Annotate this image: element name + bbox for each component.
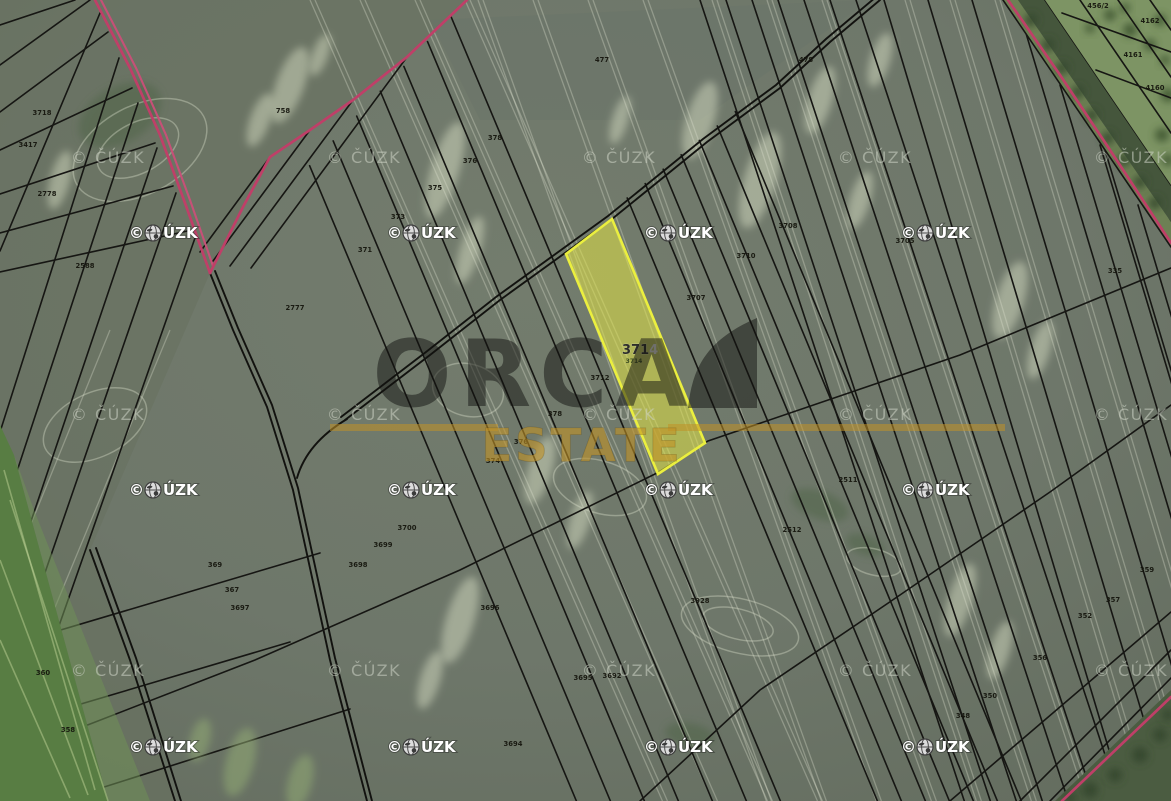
brand-orca-text: ORCA: [373, 320, 696, 428]
svg-text:375: 375: [428, 184, 442, 192]
svg-text:© ČÚZK: © ČÚZK: [327, 148, 401, 167]
svg-text:478: 478: [799, 56, 813, 64]
svg-text:©: ©: [129, 224, 144, 242]
svg-text:3707: 3707: [687, 294, 706, 302]
svg-text:© ČÚZK: © ČÚZK: [1094, 661, 1168, 680]
svg-text:©: ©: [901, 738, 916, 756]
brand-underline-left: [330, 424, 498, 431]
svg-text:378: 378: [488, 134, 502, 142]
svg-text:3718: 3718: [33, 109, 52, 117]
svg-text:© ČÚZK: © ČÚZK: [838, 405, 912, 424]
svg-text:356: 356: [1033, 654, 1047, 662]
svg-text:2512: 2512: [783, 526, 802, 534]
svg-text:758: 758: [276, 107, 290, 115]
svg-text:ÚZK: ÚZK: [421, 223, 457, 242]
svg-text:© ČÚZK: © ČÚZK: [1094, 405, 1168, 424]
svg-text:3698: 3698: [349, 561, 368, 569]
svg-text:© ČÚZK: © ČÚZK: [838, 148, 912, 167]
svg-text:367: 367: [225, 586, 239, 594]
svg-text:335: 335: [1108, 267, 1122, 275]
svg-text:© ČÚZK: © ČÚZK: [582, 148, 656, 167]
svg-text:3697: 3697: [231, 604, 250, 612]
svg-text:© ČÚZK: © ČÚZK: [1094, 148, 1168, 167]
svg-text:ÚZK: ÚZK: [678, 480, 714, 499]
svg-text:ÚZK: ÚZK: [421, 737, 457, 756]
svg-text:477: 477: [595, 56, 609, 64]
svg-text:4161: 4161: [1124, 51, 1143, 59]
svg-text:4162: 4162: [1141, 17, 1160, 25]
svg-text:352: 352: [1078, 612, 1092, 620]
svg-text:© ČÚZK: © ČÚZK: [71, 148, 145, 167]
svg-text:348: 348: [956, 712, 970, 720]
svg-text:©: ©: [901, 481, 916, 499]
brand-estate-text: ESTATE: [481, 419, 682, 472]
svg-text:3708: 3708: [779, 222, 798, 230]
svg-text:2778: 2778: [38, 190, 57, 198]
svg-text:3695: 3695: [574, 674, 593, 682]
svg-text:©: ©: [644, 738, 659, 756]
svg-text:373: 373: [391, 213, 405, 221]
svg-text:3700: 3700: [398, 524, 417, 532]
svg-text:ÚZK: ÚZK: [935, 480, 971, 499]
svg-text:3696: 3696: [481, 604, 500, 612]
svg-text:©: ©: [387, 224, 402, 242]
map-viewport: © ČÚZK© ČÚZK© ČÚZK© ČÚZK© ČÚZK© ČÚZK© ČÚ…: [0, 0, 1171, 801]
svg-text:© ČÚZK: © ČÚZK: [327, 661, 401, 680]
svg-text:456/2: 456/2: [1087, 2, 1109, 10]
svg-text:357: 357: [1106, 596, 1120, 604]
svg-text:376: 376: [463, 157, 477, 165]
svg-text:©: ©: [644, 224, 659, 242]
svg-text:3417: 3417: [19, 141, 38, 149]
svg-text:3705: 3705: [896, 237, 915, 245]
svg-text:ÚZK: ÚZK: [935, 737, 971, 756]
svg-text:3694: 3694: [504, 740, 523, 748]
svg-text:ÚZK: ÚZK: [935, 223, 971, 242]
svg-text:2511: 2511: [839, 476, 858, 484]
brand-underline-right: [668, 424, 1005, 431]
svg-text:ÚZK: ÚZK: [678, 737, 714, 756]
svg-text:©: ©: [644, 481, 659, 499]
svg-text:3928: 3928: [691, 597, 710, 605]
svg-text:350: 350: [983, 692, 997, 700]
svg-text:©: ©: [129, 481, 144, 499]
svg-text:©: ©: [387, 481, 402, 499]
svg-text:2777: 2777: [286, 304, 305, 312]
svg-text:3692: 3692: [603, 672, 622, 680]
svg-text:ÚZK: ÚZK: [421, 480, 457, 499]
cadastral-satellite-map[interactable]: © ČÚZK© ČÚZK© ČÚZK© ČÚZK© ČÚZK© ČÚZK© ČÚ…: [0, 0, 1171, 801]
svg-text:358: 358: [61, 726, 75, 734]
svg-text:359: 359: [1140, 566, 1154, 574]
svg-text:© ČÚZK: © ČÚZK: [71, 661, 145, 680]
svg-text:369: 369: [208, 561, 222, 569]
svg-text:3710: 3710: [737, 252, 756, 260]
svg-text:© ČÚZK: © ČÚZK: [71, 405, 145, 424]
svg-text:ÚZK: ÚZK: [163, 223, 199, 242]
svg-text:©: ©: [387, 738, 402, 756]
svg-text:© ČÚZK: © ČÚZK: [838, 661, 912, 680]
svg-text:4160: 4160: [1146, 84, 1165, 92]
svg-text:ÚZK: ÚZK: [163, 737, 199, 756]
svg-text:360: 360: [36, 669, 50, 677]
svg-text:ÚZK: ÚZK: [678, 223, 714, 242]
svg-text:©: ©: [129, 738, 144, 756]
svg-text:371: 371: [358, 246, 372, 254]
svg-text:ÚZK: ÚZK: [163, 480, 199, 499]
svg-text:3699: 3699: [374, 541, 393, 549]
svg-text:2588: 2588: [76, 262, 95, 270]
